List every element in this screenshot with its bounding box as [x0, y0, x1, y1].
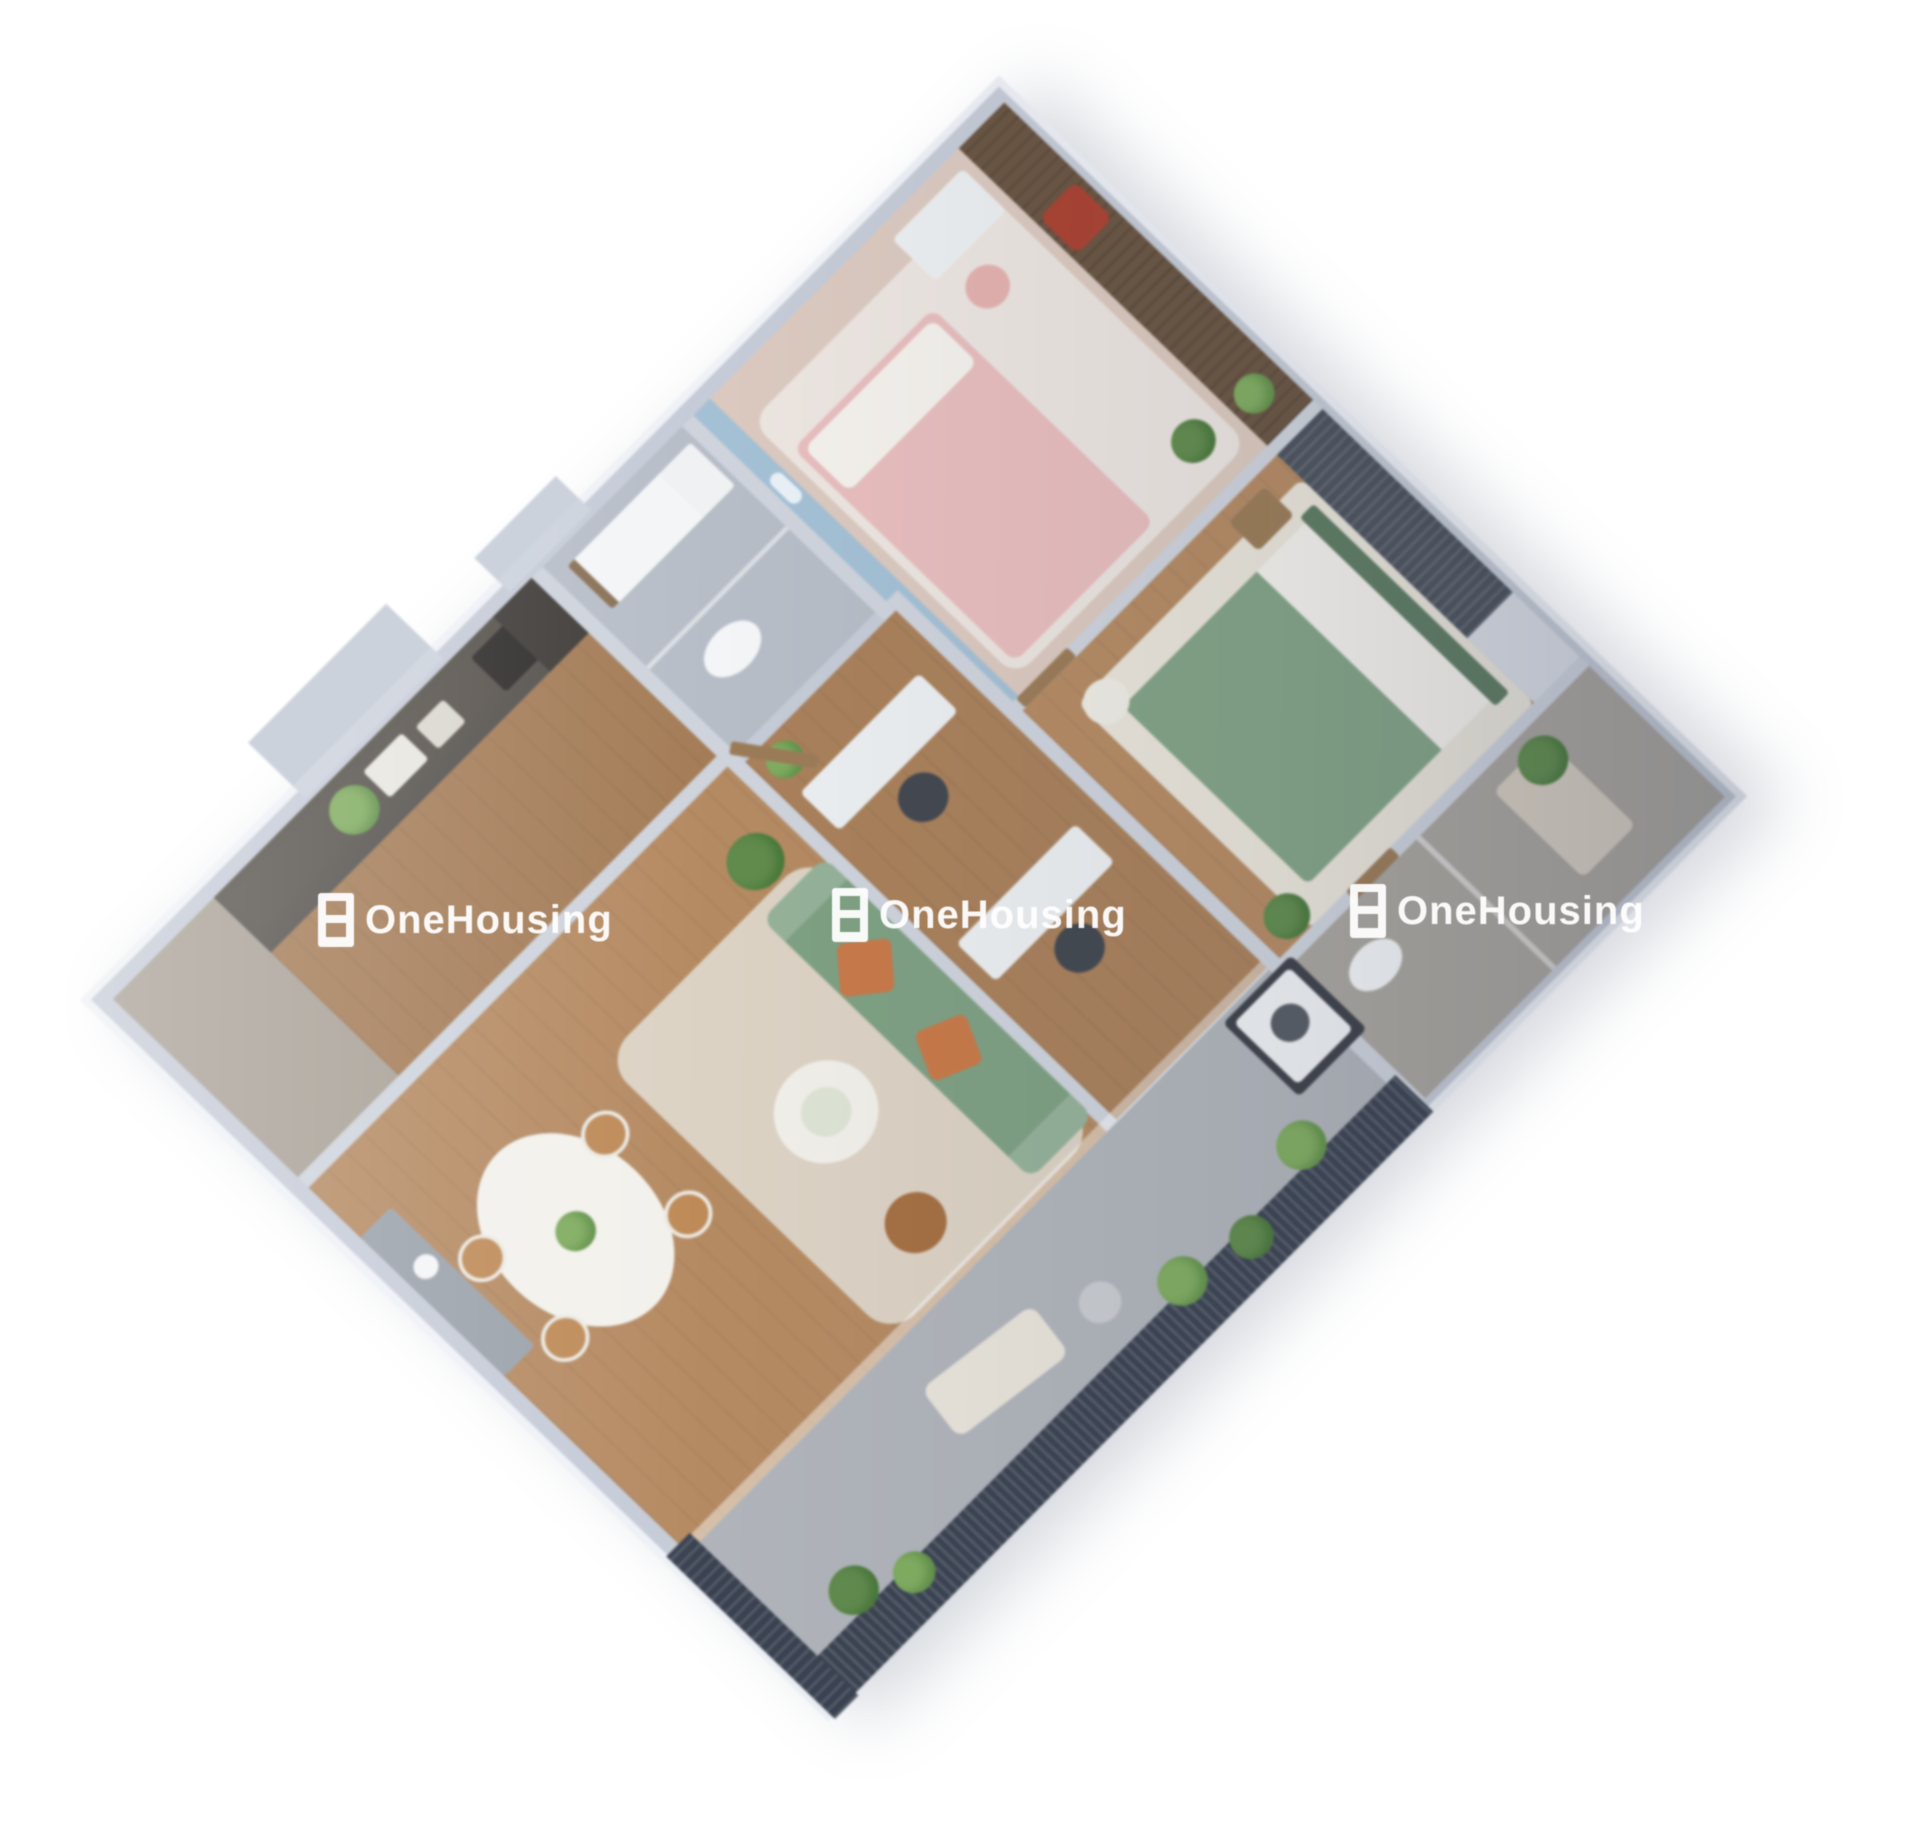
watermark-text: OneHousing	[1397, 889, 1645, 934]
floorplan-canvas: OneHousing OneHousing OneHousing	[0, 0, 1921, 1833]
onehousing-logo-icon	[1350, 884, 1386, 938]
onehousing-logo-icon	[318, 893, 354, 947]
watermark-text: OneHousing	[879, 893, 1127, 938]
watermark: OneHousing	[318, 893, 613, 947]
onehousing-logo-icon	[832, 888, 868, 942]
watermark: OneHousing	[1350, 884, 1645, 938]
watermark-text: OneHousing	[365, 898, 613, 943]
watermark: OneHousing	[832, 888, 1127, 942]
sofa-pillow	[836, 938, 894, 997]
